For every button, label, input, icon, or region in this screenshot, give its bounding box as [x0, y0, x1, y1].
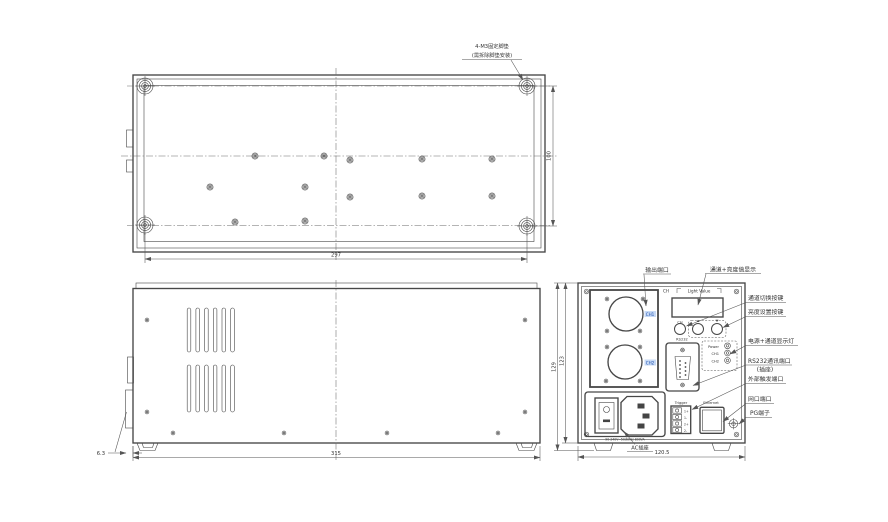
ethernet-outer [700, 407, 724, 433]
dim-100-text: 100 [547, 151, 553, 161]
iec-pins [638, 404, 650, 429]
trigger-pin-2p: 2+ [684, 423, 689, 427]
callout-leds: 电源+通道显示灯 [730, 337, 798, 354]
switch-on-symbol [603, 420, 610, 423]
technical-drawing-page: 4-M3固定脚垫 (需拆除脚垫安装) 297 100 [0, 0, 888, 522]
callout-rs232-text2: (插座) [757, 366, 773, 374]
annotation-leader [511, 60, 523, 80]
led-ch1-label: CH1 [712, 352, 720, 356]
led-power-label: Power [708, 345, 719, 349]
output-ch1-label: CH1 [646, 312, 655, 317]
iec-inlet [621, 397, 658, 436]
dsub-shell [675, 357, 691, 380]
dim-120-5-text: 120.5 [655, 450, 670, 456]
output-socket-ch1 [609, 297, 643, 331]
bottom-view: 4-M3固定脚垫 (需拆除脚垫安装) 297 100 [121, 42, 558, 263]
bottom-view-inner-border [137, 79, 541, 248]
callout-network-text: 网口端口 [748, 395, 772, 403]
output-panel: CH1 CH2 [590, 290, 658, 387]
side-view: 6.3 315 [97, 280, 540, 461]
top-lip [136, 283, 537, 289]
brightness-knob-2 [712, 324, 723, 335]
vent-slots [187, 308, 234, 412]
callout-output-port: 输出端口 [643, 266, 671, 306]
bottom-screw-holes [207, 153, 495, 225]
ethernet-jack: Ethernet [700, 401, 724, 433]
callout-ch-switch-text: 通道切换按键 [748, 294, 783, 302]
ac-inlet-module: 90-240V~50/60Hz 800VA [585, 392, 665, 442]
trigger-pin-1n: 1- [684, 416, 687, 420]
dim-129: 129 [552, 283, 595, 451]
display-window [672, 298, 723, 317]
offset-leader [115, 412, 127, 452]
side-tab [127, 130, 134, 147]
feet-annotation-line2: (需拆除脚垫安装) [472, 51, 512, 59]
output-socket-ch2 [608, 345, 642, 379]
display-group: CH Light Value CH [663, 289, 726, 338]
leds [725, 343, 731, 363]
dim-123: 123 [560, 283, 579, 443]
side-tab [127, 160, 134, 172]
led-indicator-box: Power CH1 CH2 [702, 341, 737, 371]
channel-knob [675, 324, 686, 335]
dim-315: 315 [133, 446, 540, 461]
side-feet [137, 443, 537, 451]
callout-trigger-text: 外部触发端口 [748, 375, 783, 383]
callout-pg: PG端子 [739, 409, 772, 424]
ethernet-inner [703, 410, 722, 431]
trigger-pin-2n: 2- [684, 429, 687, 433]
dsub-pins [679, 360, 686, 378]
rs232-label: RS232 [676, 338, 688, 342]
switch-off-symbol [604, 407, 610, 413]
output-panel-plate [590, 290, 658, 387]
display-light-value-label: Light Value [688, 289, 711, 294]
dim-6-3: 6.3 [97, 446, 142, 457]
brightness-knob-1 [693, 324, 704, 335]
dim-315-text: 315 [331, 451, 341, 457]
callout-display-text: 通道+亮度值显示 [710, 266, 756, 274]
rs232-connector: RS232 [666, 338, 699, 392]
output-ch2-label: CH2 [646, 361, 655, 366]
trigger-terminal: Trigger 1+ 1- 2+ 2- [671, 401, 691, 434]
rs232-bezel [666, 343, 699, 391]
trigger-label: Trigger [674, 401, 688, 405]
callout-output-port-text: 输出端口 [645, 266, 669, 274]
power-switch [595, 398, 618, 433]
side-connector-tab [126, 390, 134, 428]
callout-ac-text: AC插座 [631, 444, 648, 452]
bottom-view-base-plate [144, 86, 534, 242]
side-view-outline [133, 289, 540, 444]
rear-outline [578, 283, 745, 443]
callout-brightness-text: 亮度设置按键 [748, 308, 783, 316]
dim-6-3-text: 6.3 [97, 451, 105, 457]
bracket-left [677, 289, 681, 294]
callout-pg-text: PG端子 [750, 409, 770, 417]
pg-terminal [728, 418, 739, 429]
dim-123-text: 123 [560, 356, 566, 366]
ac-rating-text: 90-240V~50/60Hz 800VA [605, 438, 645, 442]
led-ch2-label: CH2 [712, 359, 720, 363]
dim-120-5: 120.5 [578, 446, 745, 461]
feet-annotation-line1: 4-M3固定脚垫 [475, 42, 510, 50]
bracket-right [717, 289, 721, 294]
drawing-canvas: 4-M3固定脚垫 (需拆除脚垫安装) 297 100 [0, 0, 888, 522]
dim-297-text: 297 [331, 253, 341, 259]
display-ch-header: CH [663, 289, 669, 294]
trigger-pin-1p: 1+ [684, 410, 689, 414]
callout-brightness: 亮度设置按键 [723, 308, 786, 328]
dim-129-text: 129 [552, 362, 558, 372]
feet-annotation: 4-M3固定脚垫 (需拆除脚垫安装) [462, 42, 523, 80]
rear-view: CH1 CH2 CH Light Value CH RS232 [552, 283, 746, 461]
trigger-screws [673, 408, 682, 433]
callout-leds-text: 电源+通道显示灯 [748, 337, 794, 345]
callout-rs232-text1: RS232通讯端口 [748, 357, 791, 365]
down-mark [716, 320, 719, 322]
